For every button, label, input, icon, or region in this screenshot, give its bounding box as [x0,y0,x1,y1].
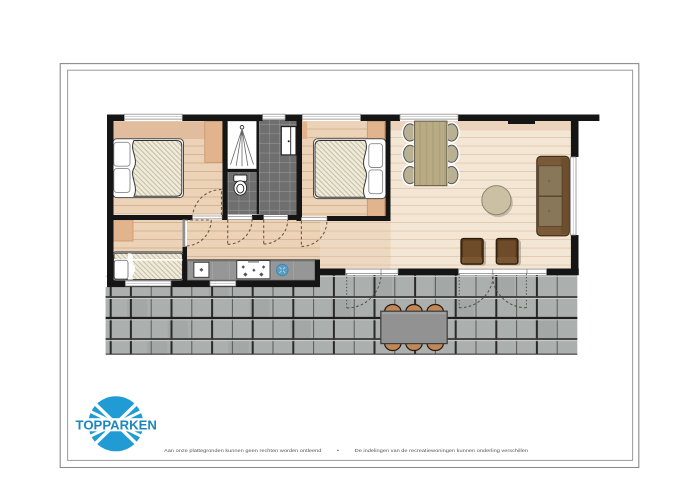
svg-text:Aan onze plattegronden kunnen: Aan onze plattegronden kunnen geen recht… [164,448,529,453]
svg-text:TOPPARKEN: TOPPARKEN [76,417,157,432]
